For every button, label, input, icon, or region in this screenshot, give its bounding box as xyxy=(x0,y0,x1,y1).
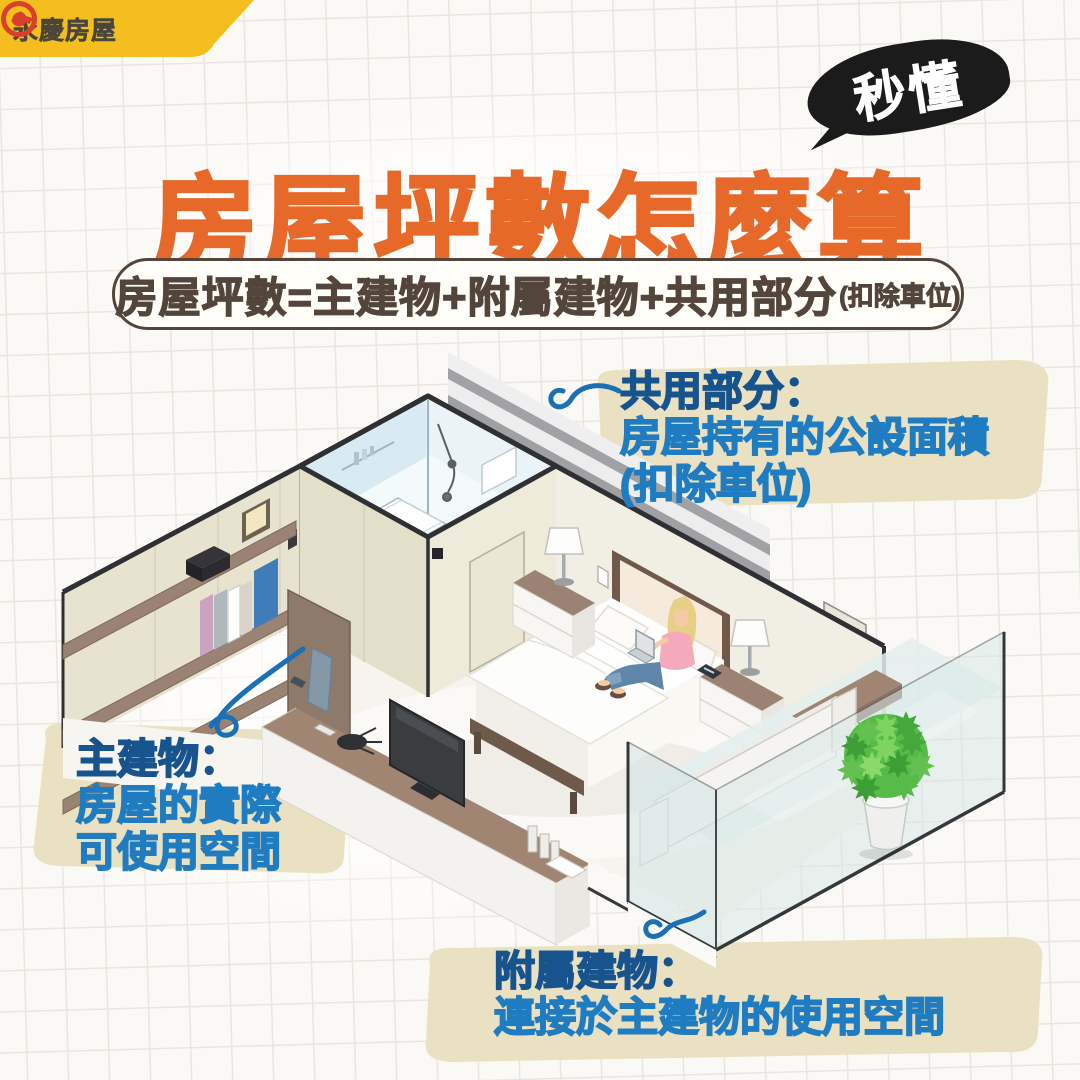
brand-logo-icon xyxy=(0,0,38,38)
person-face xyxy=(674,608,689,627)
formula-text: 房屋坪數=主建物+附屬建物+共用部分 xyxy=(116,264,838,325)
annotation-attached-building: 附屬建物： 連接於主建物的使用空間 xyxy=(494,948,945,1041)
annotation-attached-heading: 附屬建物： xyxy=(494,948,945,994)
annotation-main-heading: 主建物： xyxy=(76,736,281,782)
annotation-attached-line1: 連接於主建物的使用空間 xyxy=(494,994,945,1040)
annotation-main-building: 主建物： 房屋的實際 可使用空間 xyxy=(76,736,281,875)
annotation-common-line1: 房屋持有的公設面積 xyxy=(620,414,989,460)
light-switch xyxy=(432,548,443,559)
infographic-poster: 永慶房屋 秒懂 房屋坪數怎麼算 房屋坪數=主建物+附屬建物+共用部分 (扣除車位… xyxy=(0,0,1080,1080)
annotation-main-line1: 房屋的實際 xyxy=(76,782,281,828)
standing-mirror xyxy=(308,648,332,712)
formula-note: (扣除車位) xyxy=(839,276,960,313)
annotation-common-heading: 共用部分： xyxy=(620,368,989,414)
speech-bubble-label: 秒懂 xyxy=(848,41,968,132)
annotation-main-line2: 可使用空間 xyxy=(76,829,281,875)
formula-box: 房屋坪數=主建物+附屬建物+共用部分 (扣除車位) xyxy=(112,258,964,330)
annotation-common-area: 共用部分： 房屋持有的公設面積 (扣除車位) xyxy=(620,368,989,507)
annotation-common-line2: (扣除車位) xyxy=(620,461,989,507)
person-shirt xyxy=(659,632,695,671)
